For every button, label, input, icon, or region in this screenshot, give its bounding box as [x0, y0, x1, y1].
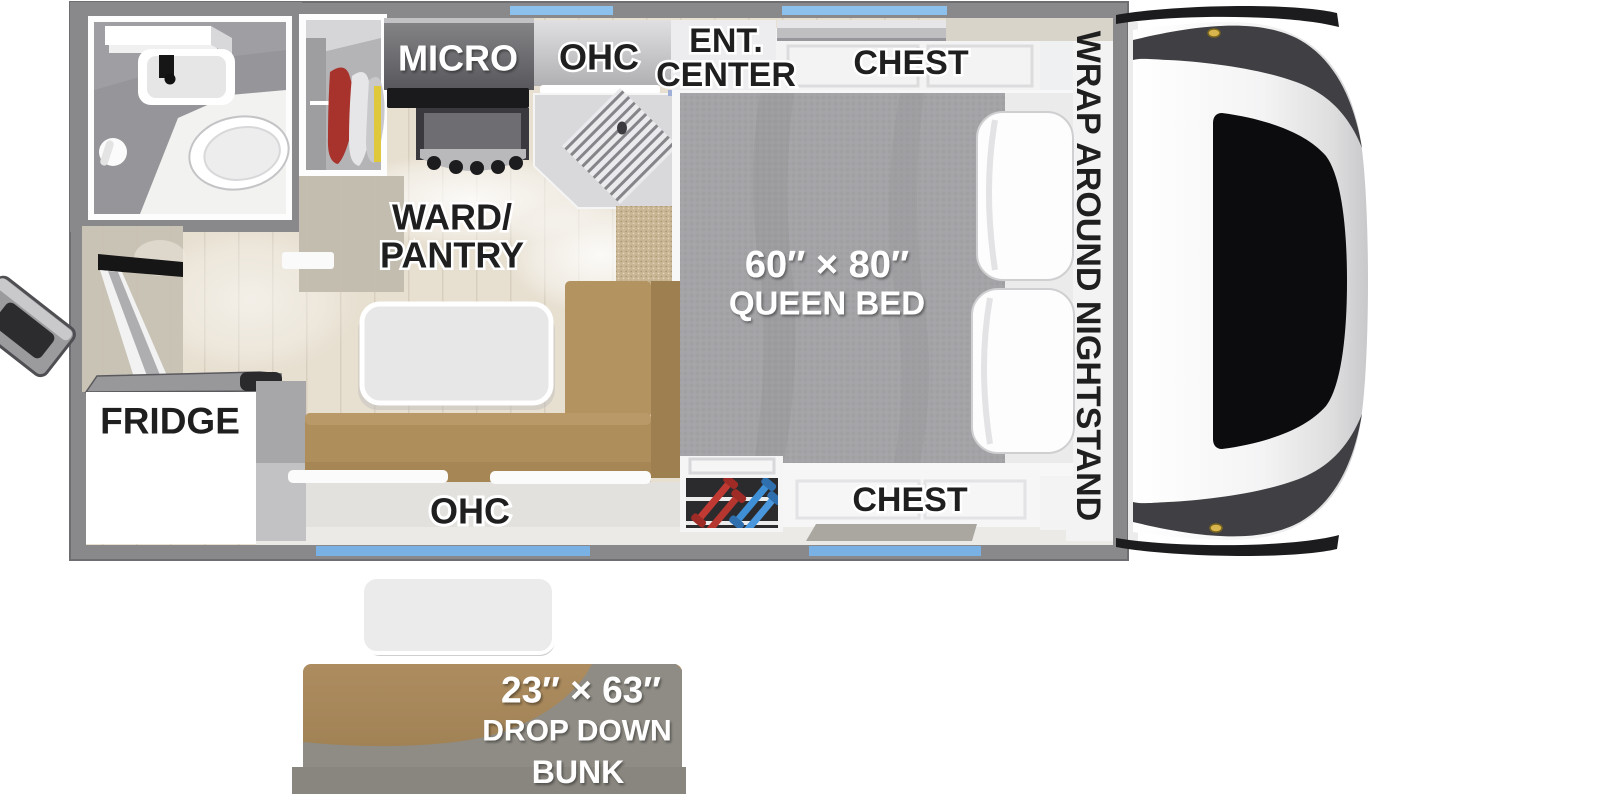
svg-text:BUNK: BUNK — [532, 754, 624, 790]
svg-text:FRIDGE: FRIDGE — [100, 401, 240, 442]
svg-text:MICRO: MICRO — [398, 38, 518, 79]
svg-text:QUEEN BED: QUEEN BED — [729, 285, 925, 322]
svg-text:WRAP AROUND NIGHTSTAND: WRAP AROUND NIGHTSTAND — [1069, 31, 1107, 521]
svg-text:OHC: OHC — [430, 491, 510, 532]
svg-text:60″ × 80″: 60″ × 80″ — [745, 244, 909, 286]
svg-text:PANTRY: PANTRY — [380, 235, 524, 276]
svg-text:OHC: OHC — [559, 37, 639, 78]
svg-text:WARD/: WARD/ — [392, 197, 512, 238]
svg-text:ENT.: ENT. — [689, 22, 763, 60]
svg-text:CHEST: CHEST — [852, 481, 967, 519]
svg-text:CHEST: CHEST — [853, 44, 968, 82]
svg-text:DROP DOWN: DROP DOWN — [482, 715, 671, 748]
svg-text:CENTER: CENTER — [656, 56, 796, 94]
svg-text:23″ × 63″: 23″ × 63″ — [501, 670, 661, 711]
